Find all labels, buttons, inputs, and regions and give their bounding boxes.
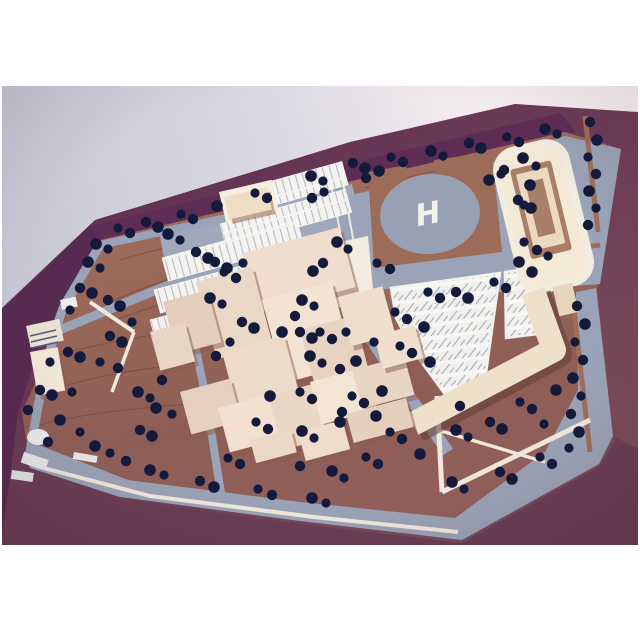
photo-vignette xyxy=(2,86,638,545)
site-model-canvas: H xyxy=(0,0,640,640)
photo-of-site-model: H xyxy=(0,0,640,640)
